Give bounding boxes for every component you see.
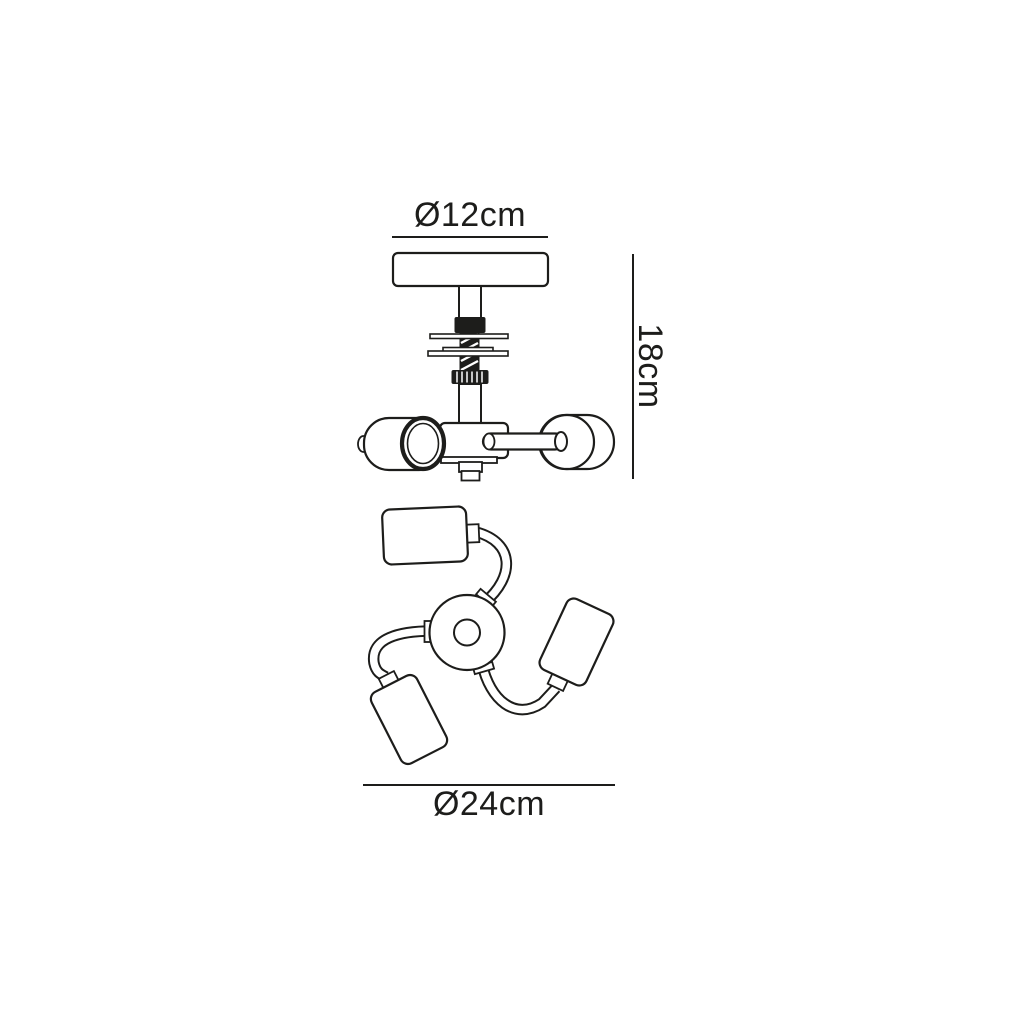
spotlight-head-right — [532, 596, 616, 698]
lock-collar — [455, 317, 486, 333]
washer-disc-lower-wide — [428, 351, 508, 356]
stem-upper — [459, 286, 481, 319]
top-view-drawing — [363, 506, 616, 785]
washer-disc-upper — [430, 334, 508, 339]
stem-lower — [459, 384, 481, 426]
rod-ring-right — [555, 432, 567, 451]
ceiling-canopy — [393, 253, 548, 286]
arm-tube-left — [374, 631, 432, 677]
diagram-canvas: Ø12cm 18cm Ø24cm — [0, 0, 1024, 1024]
fixture-diameter-label: Ø24cm — [411, 786, 567, 822]
dimension-diagram — [0, 0, 1024, 1024]
head-shade — [368, 672, 450, 766]
rod-ring-left — [484, 434, 495, 450]
spotlight-head-bottom-left — [364, 663, 450, 766]
head-shade — [537, 596, 616, 688]
drop-height-label: 18cm — [583, 299, 717, 433]
central-hub-hole — [454, 620, 480, 646]
canopy-diameter-label: Ø12cm — [392, 197, 548, 233]
spotlight-head-top-left — [382, 506, 480, 565]
head-shade — [382, 506, 468, 565]
socket-lower — [462, 471, 480, 481]
